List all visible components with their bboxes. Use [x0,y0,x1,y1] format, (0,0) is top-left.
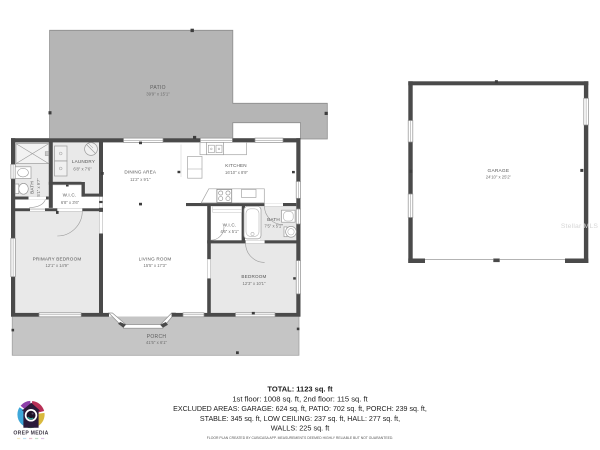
svg-text:BEDROOM: BEDROOM [241,274,266,279]
svg-text:GARAGE: GARAGE [488,168,510,174]
svg-text:4'6" x 5'1": 4'6" x 5'1" [220,229,239,234]
svg-text:LIVING ROOM: LIVING ROOM [139,256,172,261]
svg-text:16'10" x 8'9": 16'10" x 8'9" [225,170,248,175]
svg-text:6'8" x 3'6": 6'8" x 3'6" [61,200,80,205]
svg-text:DINING AREA: DINING AREA [124,170,157,175]
svg-text:12'3" x 10'1": 12'3" x 10'1" [243,281,266,286]
svg-text:BATH: BATH [30,181,35,194]
svg-text:KITCHEN: KITCHEN [225,163,247,168]
svg-text:BATH: BATH [267,217,280,222]
svg-text:EXCLUDED AREAS: GARAGE: 624 sq: EXCLUDED AREAS: GARAGE: 624 sq. ft, PATI… [173,405,427,413]
svg-text:WALLS: 225 sq. ft: WALLS: 225 sq. ft [271,424,330,433]
svg-text:W.I.C.: W.I.C. [223,222,237,227]
svg-text:STABLE: 345 sq. ft, LOW CEILIN: STABLE: 345 sq. ft, LOW CEILING: 237 sq.… [200,415,400,423]
svg-text:FLOOR PLAN CREATED BY CUBICASA: FLOOR PLAN CREATED BY CUBICASA APP. MEAS… [207,436,394,440]
svg-text:11'2" x 9'1": 11'2" x 9'1" [130,177,151,182]
svg-text:1st floor: 1008 sq. ft, 2nd fl: 1st floor: 1008 sq. ft, 2nd floor: 115 s… [232,394,368,403]
svg-text:15'5" x 17'3": 15'5" x 17'3" [144,263,167,268]
svg-text:6'8" x 7'6": 6'8" x 7'6" [73,167,92,172]
svg-text:PATIO: PATIO [150,85,166,91]
svg-text:PRIMARY BEDROOM: PRIMARY BEDROOM [33,256,82,261]
svg-text:OREP MEDIA: OREP MEDIA [13,430,48,436]
svg-text:LAUNDRY: LAUNDRY [72,159,95,164]
svg-text:W.I.C.: W.I.C. [63,192,77,197]
svg-text:41'5" x 6'1": 41'5" x 6'1" [146,340,168,345]
svg-text:Stellar MLS: Stellar MLS [561,223,599,230]
svg-text:PORCH: PORCH [147,334,167,340]
svg-text:5'1" x 9'7": 5'1" x 9'7" [36,178,41,197]
svg-text:TOTAL: 1123 sq. ft: TOTAL: 1123 sq. ft [267,385,333,394]
svg-text:7'5" x 5'1": 7'5" x 5'1" [264,223,283,228]
svg-text:39'9" x 15'1": 39'9" x 15'1" [146,91,170,96]
svg-text:12'1" x 14'9": 12'1" x 14'9" [46,263,69,268]
svg-text:24'10" x 25'2": 24'10" x 25'2" [486,175,512,180]
